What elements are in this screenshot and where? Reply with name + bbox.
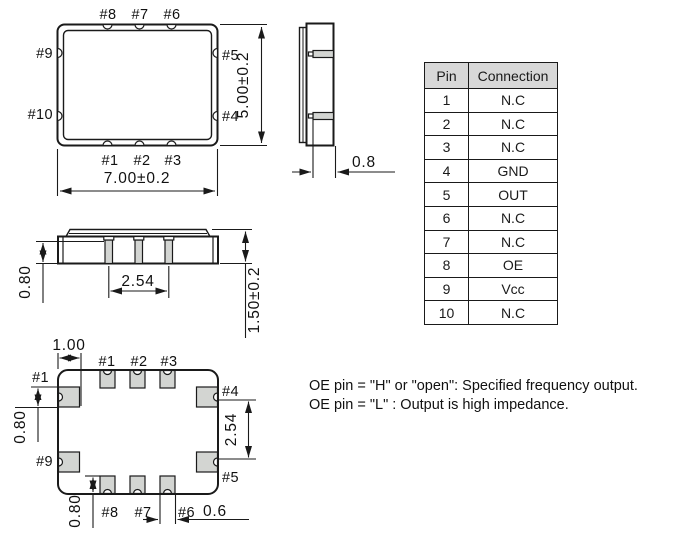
bottom-view: #1 #2 #3 #1 #9 #4 #5 #8 #7 #6 1.00 0.80 …	[12, 337, 256, 528]
connection-cell: N.C	[469, 206, 558, 230]
table-header: Pin Connection	[425, 63, 558, 89]
table-row: 8OE	[425, 254, 558, 278]
pin-cell: 2	[425, 112, 469, 136]
pad-cap	[164, 237, 174, 241]
pin-label: #4	[222, 384, 239, 400]
pin-cell: 4	[425, 159, 469, 183]
pad	[313, 51, 334, 58]
connection-cell: N.C	[469, 89, 558, 113]
connection-cell: OUT	[469, 183, 558, 207]
pin-label: #3	[161, 354, 178, 370]
dim-label: 0.80	[17, 265, 34, 298]
pin-label: #5	[222, 470, 239, 486]
table-row: 3N.C	[425, 136, 558, 160]
table-body: 1N.C2N.C3N.C4GND5OUT6N.C7N.C8OE9Vcc10N.C	[425, 89, 558, 325]
connection-cell: GND	[469, 159, 558, 183]
table-header-row: Pin Connection	[425, 63, 558, 89]
notch	[214, 458, 218, 466]
pads	[59, 371, 218, 494]
package-inner-outline	[64, 31, 212, 140]
connection-cell: N.C	[469, 230, 558, 254]
castellation-notches	[59, 371, 218, 494]
table-row: 6N.C	[425, 206, 558, 230]
pin-label: #1	[99, 354, 116, 370]
notch	[59, 393, 63, 401]
dim-pad-pitch: 2.54	[109, 266, 169, 298]
pin-label: #7	[135, 505, 152, 521]
dim-body-height: 1.50±0.2	[212, 230, 263, 339]
notch	[134, 490, 142, 494]
pin-label: #8	[100, 7, 117, 23]
dim-pad-height: 0.80	[17, 242, 104, 304]
dim-label: 0.80	[12, 410, 29, 443]
pin-label: #1	[32, 370, 49, 386]
connection-cell: N.C	[469, 301, 558, 325]
front-view: 0.80 2.54 1.50±0.2	[17, 230, 263, 339]
pin-cell: 5	[425, 183, 469, 207]
oe-note-line2: OE pin = "L" : Output is high impedance.	[309, 396, 638, 415]
table-row: 5OUT	[425, 183, 558, 207]
notch	[164, 490, 172, 494]
dim-body-height: 5.00±0.2	[220, 25, 267, 146]
dim-label: 0.8	[352, 154, 376, 171]
notch	[214, 393, 218, 401]
notch	[167, 25, 176, 30]
connection-cell: N.C	[469, 136, 558, 160]
notch	[104, 490, 112, 494]
pad-nub	[309, 52, 314, 56]
pin-column-header: Pin	[425, 63, 469, 89]
notch	[103, 25, 112, 30]
top-view: #8 #7 #6 #9 #10 #5 #4 #1 #2 #3 5.00±0.2 …	[28, 7, 267, 196]
notch	[213, 112, 218, 121]
connection-cell: OE	[469, 254, 558, 278]
notch	[213, 49, 218, 58]
notch	[135, 25, 144, 30]
dim-pad-pitch-right: 2.54	[219, 400, 256, 459]
notch	[167, 141, 176, 146]
pin-label: #10	[28, 107, 53, 123]
package-outline	[58, 25, 218, 146]
dim-label: 0.6	[203, 503, 227, 520]
table-row: 9Vcc	[425, 277, 558, 301]
pin-cell: 10	[425, 301, 469, 325]
dim-pad-width: 0.6	[143, 494, 249, 524]
dim-label: 1.50±0.2	[246, 267, 263, 334]
notch	[164, 371, 172, 375]
body	[307, 24, 334, 146]
dim-label: 7.00±0.2	[104, 170, 171, 187]
oe-note-line1: OE pin = "H" or "open": Specified freque…	[309, 377, 638, 396]
notch	[135, 141, 144, 146]
pad	[105, 240, 113, 264]
table-row: 4GND	[425, 159, 558, 183]
pin-connection-table: Pin Connection 1N.C2N.C3N.C4GND5OUT6N.C7…	[424, 62, 558, 325]
notch	[58, 112, 63, 121]
package-drawing: #8 #7 #6 #9 #10 #5 #4 #1 #2 #3 5.00±0.2 …	[0, 0, 683, 536]
package-outline	[58, 370, 218, 494]
pin-label: #9	[36, 454, 53, 470]
pin-cell: 7	[425, 230, 469, 254]
pin-label: #2	[131, 354, 148, 370]
dim-label: 1.00	[52, 337, 85, 354]
pin-label: #8	[102, 505, 119, 521]
notch	[103, 141, 112, 146]
pin-cell: 8	[425, 254, 469, 278]
pad-cap	[104, 237, 114, 241]
datasheet-page: { "top_view": { "pins_top": ["#8", "#7",…	[0, 0, 683, 536]
pad-nub	[309, 114, 314, 118]
table-row: 7N.C	[425, 230, 558, 254]
pin-cell: 6	[425, 206, 469, 230]
pin-label: #6	[164, 7, 181, 23]
table-row: 2N.C	[425, 112, 558, 136]
connection-cell: N.C	[469, 112, 558, 136]
pin-label: #3	[165, 153, 182, 169]
dim-label: 5.00±0.2	[235, 52, 252, 119]
dim-label: 2.54	[223, 413, 240, 446]
pin-cell: 1	[425, 89, 469, 113]
connection-cell: Vcc	[469, 277, 558, 301]
table-row: 1N.C	[425, 89, 558, 113]
dim-pad-height-left: 0.80	[12, 387, 57, 444]
dim-label: 0.80	[67, 494, 84, 527]
pin-label: #2	[134, 153, 151, 169]
pin-label: #9	[36, 46, 53, 62]
dim-label: 2.54	[121, 273, 154, 290]
pin-cell: 3	[425, 136, 469, 160]
pad	[135, 240, 143, 264]
side-view: 0.8	[292, 24, 395, 179]
oe-notes: OE pin = "H" or "open": Specified freque…	[309, 377, 638, 414]
pad	[165, 240, 173, 264]
notch	[59, 458, 63, 466]
pin-label: #6	[178, 505, 195, 521]
pad-cap	[134, 237, 144, 241]
notch	[104, 371, 112, 375]
pad	[313, 113, 334, 120]
notch	[134, 371, 142, 375]
connection-column-header: Connection	[469, 63, 558, 89]
castellation-notches	[58, 25, 218, 146]
pin-label: #1	[102, 153, 119, 169]
notch	[58, 49, 63, 58]
pin-label: #7	[132, 7, 149, 23]
table-row: 10N.C	[425, 301, 558, 325]
pin-cell: 9	[425, 277, 469, 301]
dim-pad-height-bottom: 0.80	[67, 476, 100, 528]
